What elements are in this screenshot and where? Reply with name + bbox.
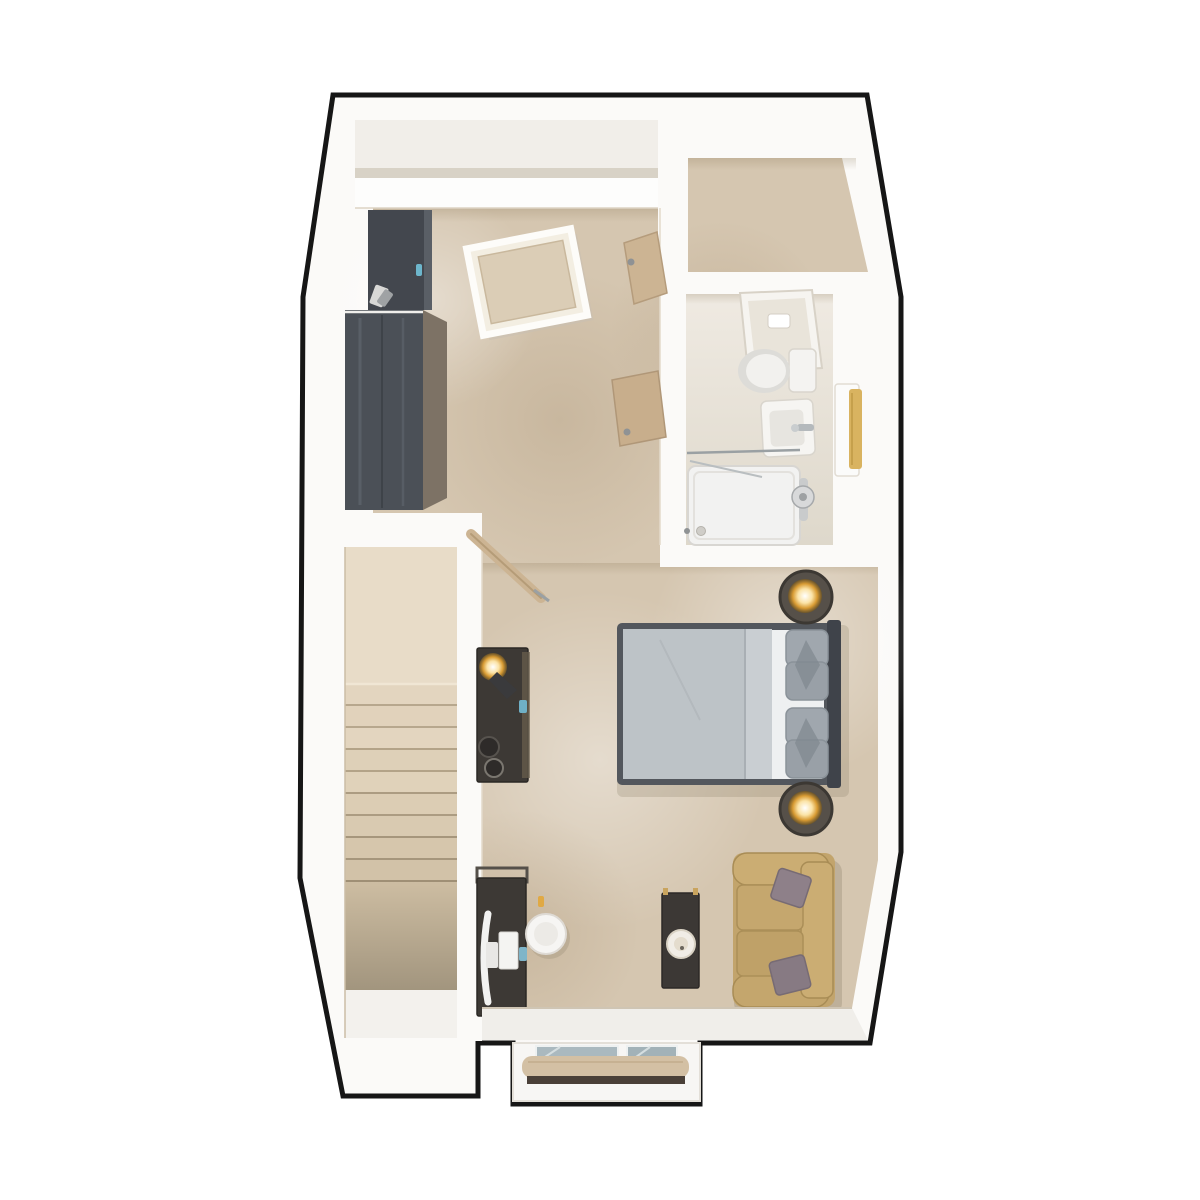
table-lamp-glow xyxy=(788,791,822,825)
washbasin xyxy=(761,399,816,458)
double-bed xyxy=(617,620,849,797)
chair-brass-detail xyxy=(538,896,544,907)
desk-with-monitor xyxy=(477,868,527,1016)
wide-wardrobe xyxy=(345,310,447,510)
keyboard xyxy=(499,932,518,969)
two-seat-sofa xyxy=(733,853,842,1015)
bed-duvet xyxy=(623,629,745,779)
console-with-reading-lamp xyxy=(477,648,530,782)
entrance xyxy=(482,1008,868,1101)
bed-duvet-fold xyxy=(745,629,772,779)
bed-headboard xyxy=(827,620,841,788)
tall-wardrobe-cabinet xyxy=(368,210,432,310)
gold-towel xyxy=(849,389,862,469)
entry-floor xyxy=(482,1008,868,1040)
bedside-table-with-lamp-top xyxy=(780,571,832,623)
cabinet-handle xyxy=(416,264,422,276)
stair-bottom-floor xyxy=(345,990,457,1038)
floor-plan-canvas xyxy=(0,0,1200,1200)
wall-bathroom-top xyxy=(660,272,882,294)
stair-drop-shadow xyxy=(345,882,457,990)
toilet xyxy=(738,349,816,393)
basin-tap xyxy=(797,424,814,431)
entry-dark-strip xyxy=(527,1076,685,1084)
eaves-void xyxy=(355,120,667,208)
shower-drain xyxy=(697,527,706,536)
towel-radiator xyxy=(835,384,862,476)
door-hinge xyxy=(684,528,690,534)
table-lamp-glow xyxy=(788,579,822,613)
narrow-console-table xyxy=(662,888,699,988)
bedside-table-with-lamp-bottom xyxy=(780,783,832,835)
floor-plan-render xyxy=(0,0,1200,1200)
entry-canopy-roll xyxy=(522,1056,689,1078)
stair-treads xyxy=(345,684,457,882)
monitor-stand xyxy=(486,942,498,968)
wall-bathroom-bottom xyxy=(660,545,882,567)
stair-landing-floor xyxy=(345,547,457,684)
